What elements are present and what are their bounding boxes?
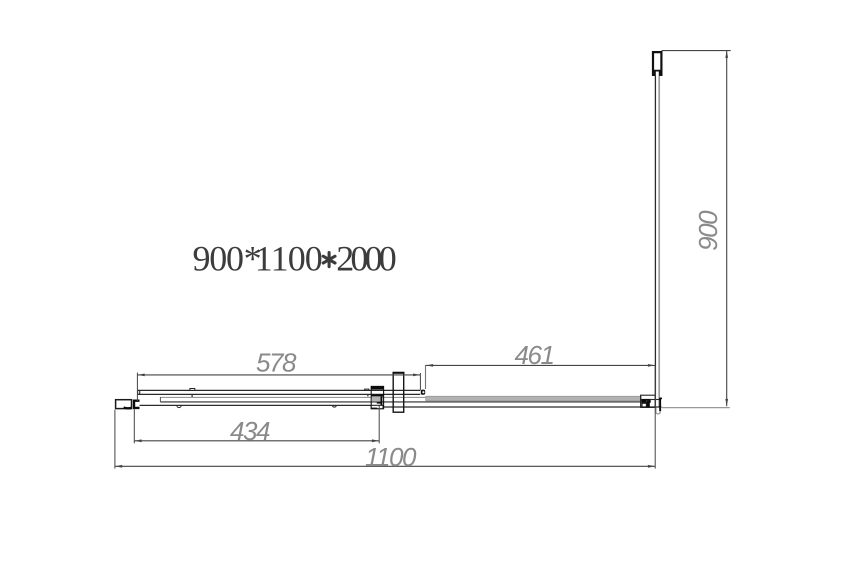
svg-text:2000: 2000 (336, 239, 396, 279)
svg-text:900: 900 (193, 239, 245, 279)
svg-text:1100: 1100 (365, 442, 417, 472)
svg-text:900: 900 (693, 210, 723, 251)
svg-text:578: 578 (256, 347, 297, 377)
svg-text:461: 461 (515, 340, 554, 370)
svg-text:434: 434 (230, 416, 270, 446)
svg-text:1100: 1100 (255, 239, 323, 279)
